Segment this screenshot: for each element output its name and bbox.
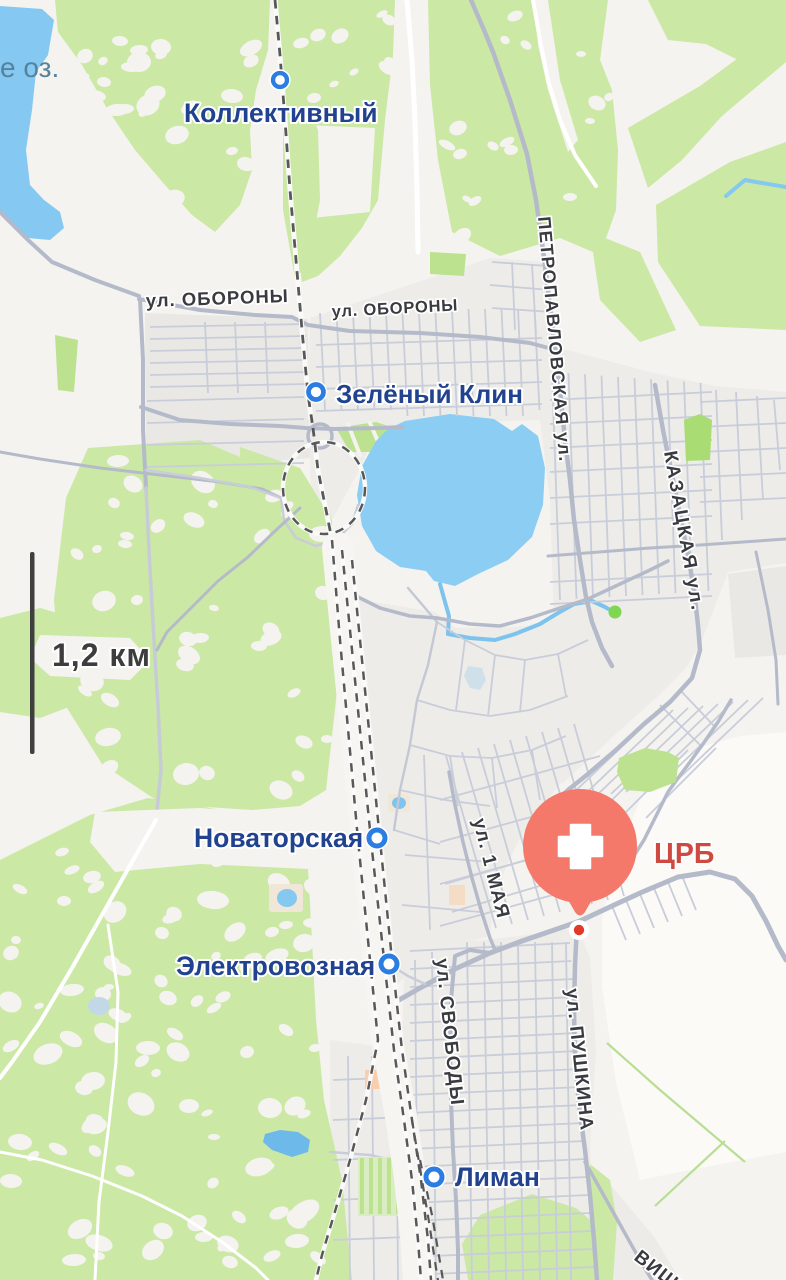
svg-text:Новаторская: Новаторская — [194, 823, 363, 853]
svg-text:е оз.: е оз. — [0, 52, 59, 83]
svg-text:Зелёный Клин: Зелёный Клин — [336, 379, 523, 409]
svg-text:Коллективный: Коллективный — [184, 98, 378, 128]
svg-text:Лиман: Лиман — [455, 1162, 540, 1192]
svg-text:Электровозная: Электровозная — [176, 951, 375, 981]
svg-text:ЦРБ: ЦРБ — [654, 838, 714, 870]
svg-text:1,2 км: 1,2 км — [52, 637, 151, 673]
